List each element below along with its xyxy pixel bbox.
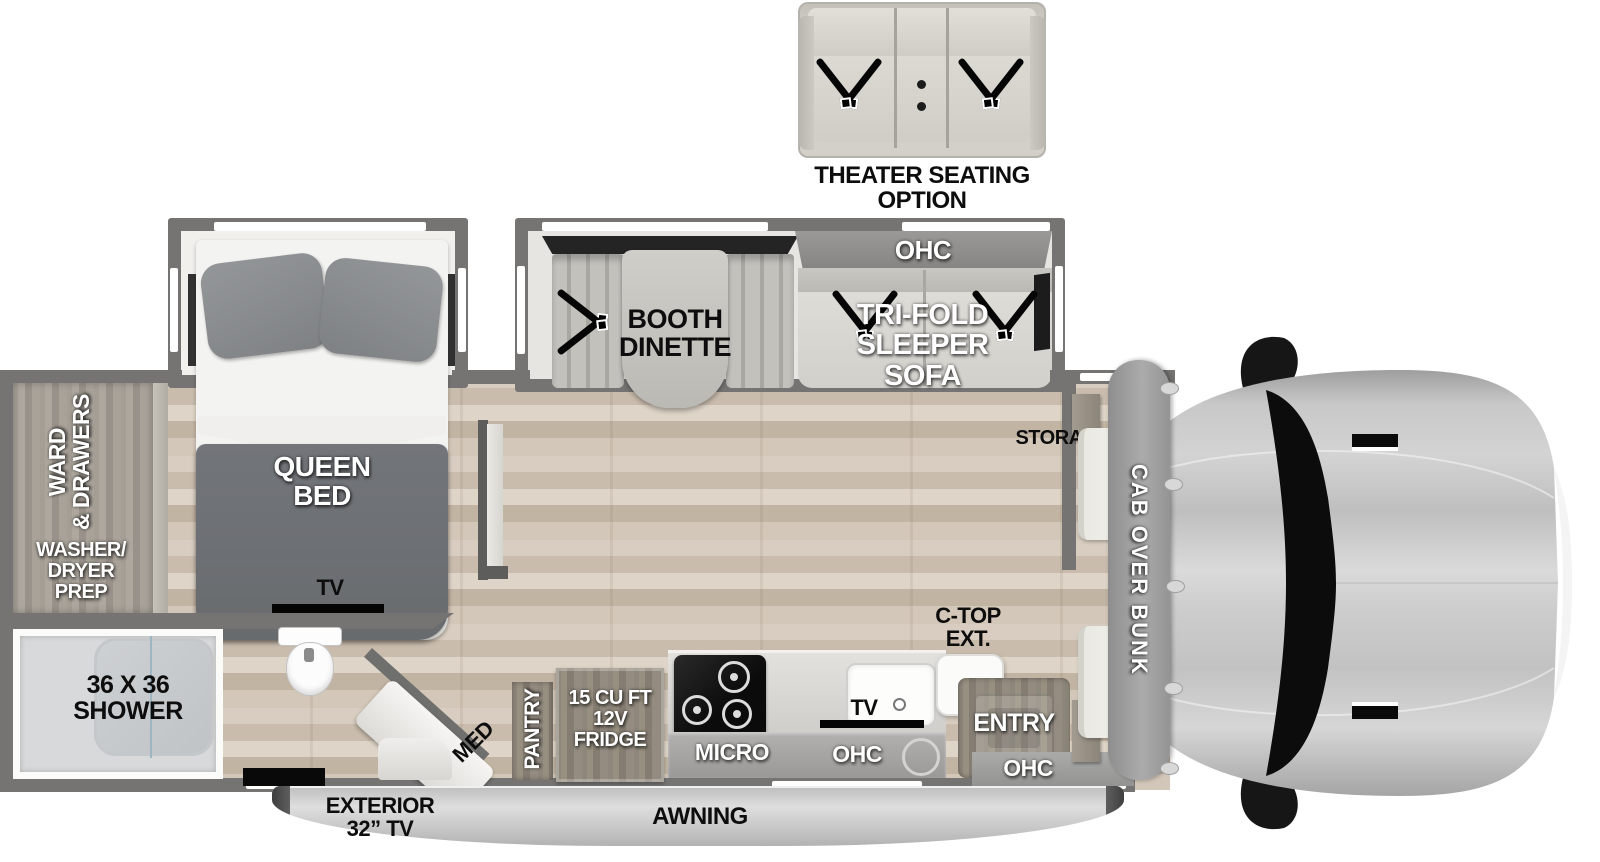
hall-partition-foot (478, 566, 508, 579)
clearance-marker (1164, 682, 1183, 695)
door-handle-trim (1352, 702, 1398, 706)
awning-end-cap-left (272, 786, 290, 846)
bedroom-tv (272, 604, 384, 613)
seatbelt-icon (816, 48, 882, 124)
kitchen-ohc-label: OHC (822, 742, 892, 766)
top-wall-mid (452, 370, 530, 384)
window (542, 222, 768, 231)
refrigerator-label: 15 CU FT 12V FRIDGE (558, 688, 662, 751)
theater-armrest-left (798, 16, 814, 150)
wardrobe-cabinet-face (153, 383, 168, 613)
theater-armrest-right (1030, 16, 1046, 150)
cab-over-bunk-label: CAB OVER BUNK (1108, 360, 1170, 780)
window (517, 266, 525, 354)
booth-dinette-label: BOOTH DINETTE (600, 305, 750, 362)
pillow (317, 256, 444, 364)
theater-seating-option (798, 2, 1046, 158)
pillow (199, 251, 332, 361)
kitchen-tv (820, 720, 924, 728)
window (458, 268, 466, 352)
theater-seating-label: THEATER SEATING OPTION (788, 163, 1056, 213)
wardrobe-label: WARD & DRAWERS (45, 357, 93, 567)
cupholder-dot (917, 102, 926, 111)
burner-icon (718, 661, 750, 693)
rv-floorplan: THEATER SEATING OPTION QUEEN BED BOOTH D… (0, 0, 1600, 862)
rear-wall (0, 370, 13, 792)
washer-dryer-prep-label: WASHER/ DRYER PREP (16, 540, 146, 603)
round-sink-icon (902, 738, 940, 776)
cooktop (674, 655, 766, 739)
window (902, 222, 1050, 231)
theater-console-divider (946, 8, 949, 148)
entry-label: ENTRY (966, 710, 1062, 736)
window (214, 222, 426, 231)
toilet-flush-button (304, 648, 314, 662)
clearance-marker (1166, 580, 1185, 593)
exterior-tv (243, 768, 325, 786)
clearance-marker (1160, 382, 1179, 395)
queen-bed-label: QUEEN BED (247, 452, 397, 511)
cab-front (1150, 328, 1580, 838)
burner-icon (722, 699, 752, 729)
micro-label: MICRO (682, 740, 782, 764)
exterior-tv-label: EXTERIOR 32” TV (290, 794, 470, 840)
entry-ohc-label: OHC (988, 756, 1068, 780)
seatbelt-icon (958, 48, 1024, 124)
window (170, 268, 178, 352)
door-handle (1352, 706, 1398, 719)
kitchen-tv-label: TV (836, 696, 892, 719)
sofa-label: TRI-FOLD SLEEPER SOFA (845, 300, 1000, 391)
burner-icon (682, 695, 712, 725)
awning-label: AWNING (620, 804, 780, 829)
pantry-label: PANTRY (522, 669, 544, 789)
faucet-icon (893, 698, 906, 711)
ctop-ext-label: C-TOP EXT. (908, 604, 1028, 650)
bedroom-tv-label: TV (300, 576, 360, 599)
theater-console-divider (894, 8, 897, 148)
hall-partition-face (487, 424, 503, 576)
sofa-ohc-label: OHC (880, 237, 966, 264)
clearance-marker (1160, 762, 1179, 775)
door-handle-trim (1352, 447, 1398, 451)
clearance-marker (1164, 478, 1183, 491)
awning-end-cap-right (1106, 786, 1124, 846)
window (1055, 266, 1063, 352)
cupholder-dot (917, 80, 926, 89)
door-handle (1352, 434, 1398, 447)
shower-label: 36 X 36 SHOWER (28, 672, 228, 725)
bath-wall (0, 613, 408, 629)
